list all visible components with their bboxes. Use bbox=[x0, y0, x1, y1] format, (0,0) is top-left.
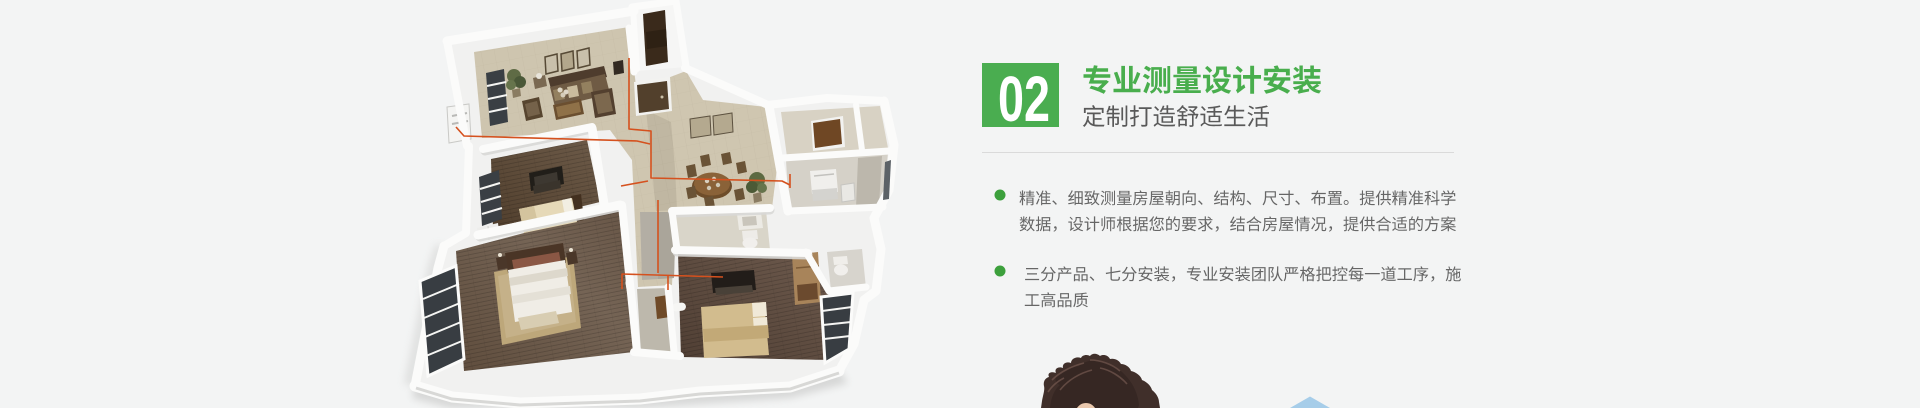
svg-text:02: 02 bbox=[998, 63, 1050, 135]
